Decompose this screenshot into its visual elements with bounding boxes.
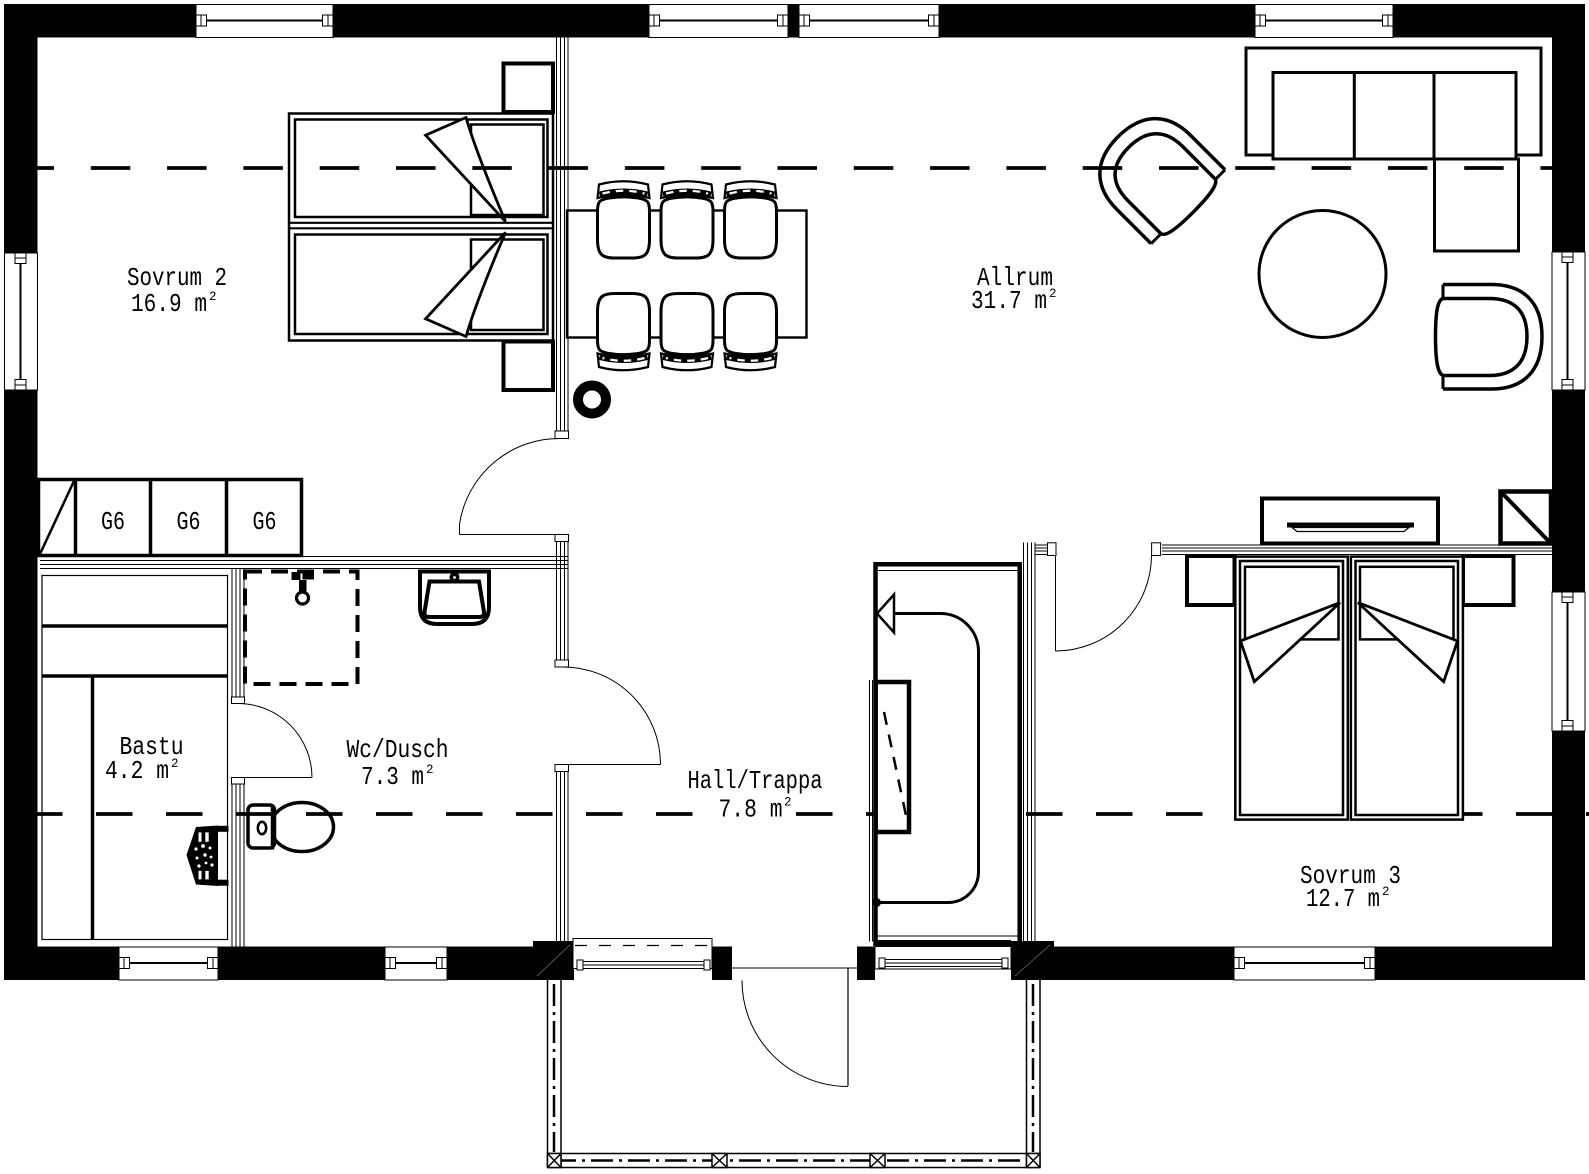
svg-text:2: 2 xyxy=(209,290,217,304)
svg-text:12.7 m: 12.7 m xyxy=(1306,884,1380,914)
svg-text:Wc/Dusch: Wc/Dusch xyxy=(347,735,449,765)
svg-text:G6: G6 xyxy=(253,508,277,537)
svg-text:31.7 m: 31.7 m xyxy=(971,286,1047,316)
svg-text:2: 2 xyxy=(784,796,792,810)
svg-text:Hall/Trappa: Hall/Trappa xyxy=(688,766,823,796)
svg-text:7.3 m: 7.3 m xyxy=(361,762,424,792)
svg-text:2: 2 xyxy=(1382,885,1390,899)
svg-text:2: 2 xyxy=(426,763,434,777)
svg-text:G6: G6 xyxy=(177,508,201,537)
svg-text:16.9 m: 16.9 m xyxy=(131,289,207,319)
svg-text:7.8 m: 7.8 m xyxy=(719,795,783,825)
svg-text:2: 2 xyxy=(171,757,179,771)
svg-text:2: 2 xyxy=(1049,287,1057,301)
svg-text:4.2 m: 4.2 m xyxy=(105,756,169,786)
svg-text:G6: G6 xyxy=(101,508,125,537)
